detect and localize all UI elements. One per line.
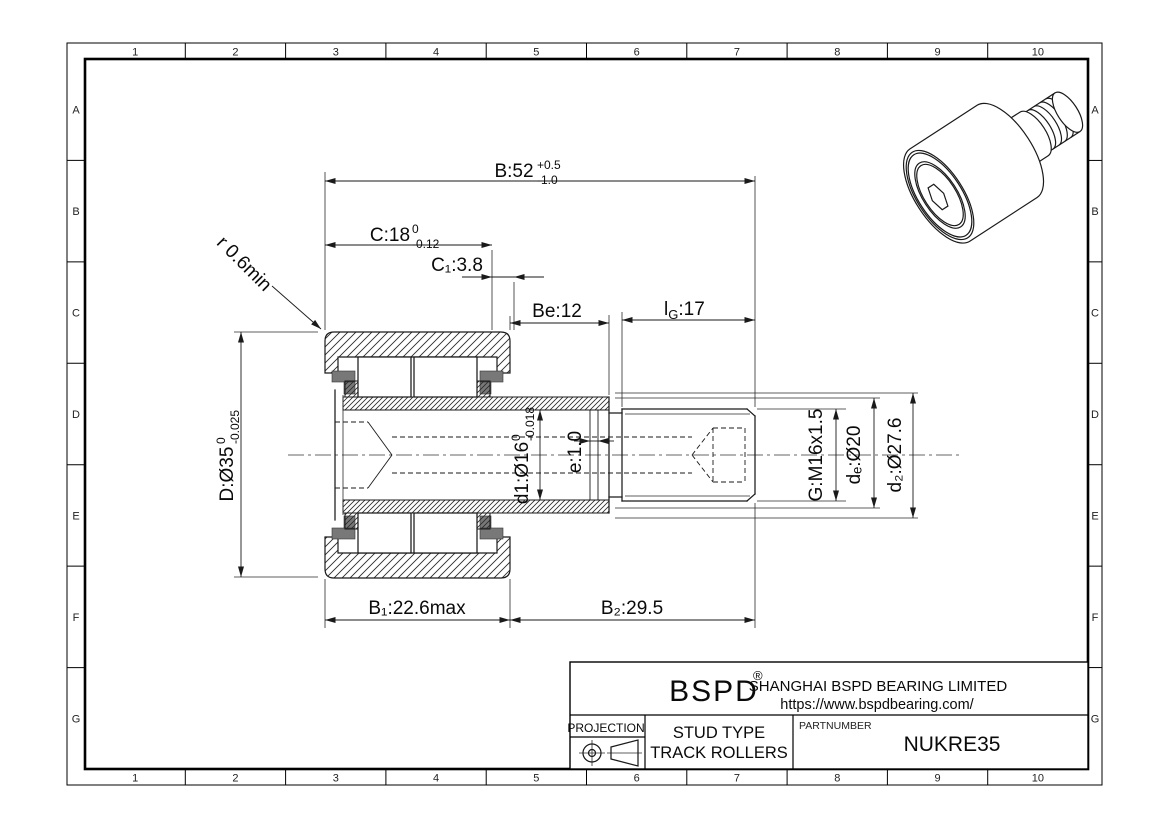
dim-D-text: D:Ø35 [217,447,238,502]
grid-label: 1 [132,47,138,59]
grid-label: 1 [132,773,138,785]
grid-label: D [72,409,80,421]
dim-e-text: e:1.0 [565,431,586,473]
company-website: https://www.bspdbearing.com/ [780,697,974,713]
grid-label: B [72,206,79,218]
grid-label: 8 [834,47,840,59]
isometric-view [893,87,1088,250]
dim-d1-text: d1:Ø16 [512,442,533,504]
dim-label-B: B:52 +0.5 -1.0 [494,158,561,187]
dim-C-tol-up: 0 [412,222,419,236]
grid-label: 5 [533,773,539,785]
dim-D-tol-up: 0 [214,437,228,444]
dim-lG-text: lG:17 [664,299,705,322]
dim-label-C: C:18 0 -0.12 [370,222,440,251]
grid-label: 10 [1032,47,1044,59]
cad-sheet-svg: 1122334455667788991010AABBCCDDEEFFGG [0,0,1170,827]
grid-label: D [1091,409,1099,421]
dim-D-tol-dn: -0.025 [228,410,242,444]
dim-d2-text: d₂:Ø27.6 [885,418,906,493]
partnumber-label: PARTNUMBER [799,720,872,732]
grid-label: G [1091,713,1100,725]
dim-G-text: G:M16x1.5 [806,409,827,502]
grid-label: 7 [734,773,740,785]
dim-B2-text: B₂:29.5 [601,598,663,619]
dim-C-tol-dn: -0.12 [412,237,440,251]
partnumber-value: NUKRE35 [904,733,1001,756]
dim-Be-text: Be:12 [532,301,582,322]
dim-label-e: e:1.0 [565,431,586,473]
dim-d1-tol-up: 0 [509,434,523,441]
grid-label: F [73,612,80,624]
dim-C-text: C:18 [370,225,410,246]
grid-label: 10 [1032,773,1044,785]
dim-B-text: B:52 [494,161,533,182]
dim-label-d2: d₂:Ø27.6 [885,418,906,493]
grid-label: 6 [634,47,640,59]
product-type-line1: STUD TYPE [673,724,765,742]
title-block: BSPD ® SHANGHAI BSPD BEARING LIMITED htt… [567,662,1088,769]
grid-label: 2 [232,773,238,785]
grid-label: 9 [934,47,940,59]
grid-label: F [1092,612,1099,624]
projection-label: PROJECTION [567,721,644,735]
grid-label: 6 [634,773,640,785]
grid-label: E [72,510,79,522]
dim-label-r: r 0.6min [212,232,275,295]
drawing-sheet: 1122334455667788991010AABBCCDDEEFFGG [0,0,1170,827]
grid-label: C [1091,308,1099,320]
grid-label: 8 [834,773,840,785]
grid-label: 5 [533,47,539,59]
company-name: SHANGHAI BSPD BEARING LIMITED [749,678,1008,695]
product-type-line2: TRACK ROLLERS [650,744,788,762]
grid-label: 3 [333,773,339,785]
grid-label: E [1091,510,1098,522]
dim-label-d1: d1:Ø16 0 -0.018 [509,407,537,505]
dim-label-D: D:Ø35 0 -0.025 [214,410,242,502]
company-logo: BSPD [669,675,759,708]
grid-label: G [72,713,81,725]
dim-r-text: r 0.6min [212,232,275,295]
dim-C1-text: C₁:3.8 [431,255,483,276]
dim-B-tol-dn: -1.0 [537,173,558,187]
dimension-labels: B:52 +0.5 -1.0 C:18 0 -0.12 C₁:3.8 Be:12… [212,158,906,619]
grid-label: 4 [433,773,439,785]
grid-label: A [1091,105,1099,117]
grid-label: 7 [734,47,740,59]
dim-label-de: dₑ:Ø20 [844,426,865,485]
grid-label: B [1091,206,1098,218]
dim-label-G: G:M16x1.5 [806,409,827,502]
dim-B1-text: B₁:22.6max [368,598,466,619]
grid-label: C [72,308,80,320]
grid-label: 9 [934,773,940,785]
grid-label: 3 [333,47,339,59]
grid-label: A [72,105,80,117]
grid-label: 2 [232,47,238,59]
dim-d1-tol-dn: -0.018 [523,407,537,441]
grid-label: 4 [433,47,439,59]
dim-de-text: dₑ:Ø20 [844,426,865,485]
dim-B-tol-up: +0.5 [537,158,561,172]
